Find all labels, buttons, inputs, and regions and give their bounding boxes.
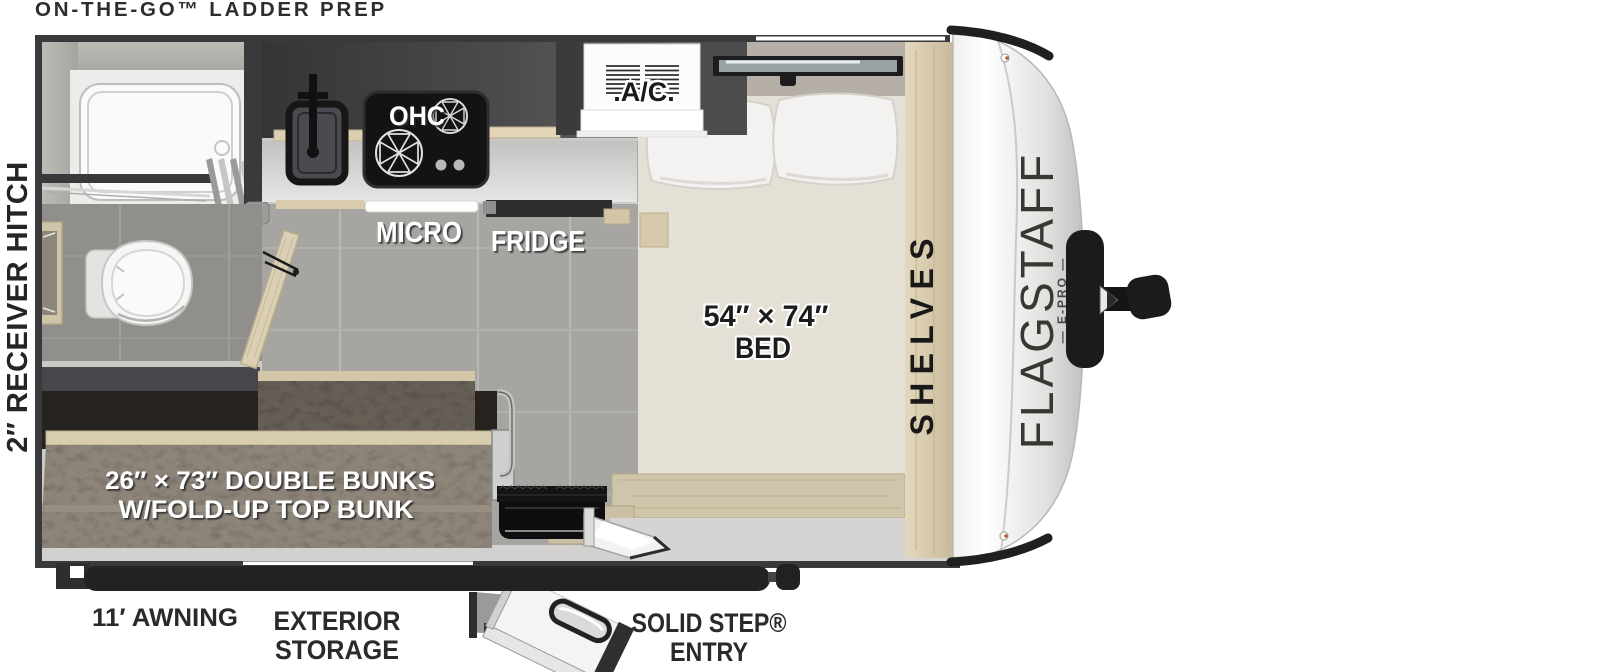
svg-text:2″ RECEIVER HITCH: 2″ RECEIVER HITCH — [2, 161, 34, 453]
svg-text:MICRO: MICRO — [376, 217, 462, 249]
svg-text:FRIDGE: FRIDGE — [491, 226, 585, 258]
svg-text:SOLID STEP®: SOLID STEP® — [632, 608, 787, 638]
svg-text:OHC: OHC — [389, 101, 445, 131]
svg-text:ON-THE-GO™ LADDER PREP: ON-THE-GO™ LADDER PREP — [35, 0, 387, 21]
svg-text:11′ AWNING: 11′ AWNING — [92, 604, 238, 632]
svg-text:EXTERIOR: EXTERIOR — [274, 606, 401, 636]
svg-text:ENTRY: ENTRY — [670, 637, 748, 667]
svg-text:W/FOLD-UP TOP BUNK: W/FOLD-UP TOP BUNK — [119, 496, 414, 524]
svg-text:26″ × 73″ DOUBLE BUNKS: 26″ × 73″ DOUBLE BUNKS — [105, 467, 435, 495]
svg-text:BED: BED — [735, 332, 791, 365]
svg-text:.A/C.: .A/C. — [613, 77, 675, 107]
svg-text:STORAGE: STORAGE — [275, 635, 399, 665]
svg-text:54″ × 74″: 54″ × 74″ — [704, 300, 829, 333]
